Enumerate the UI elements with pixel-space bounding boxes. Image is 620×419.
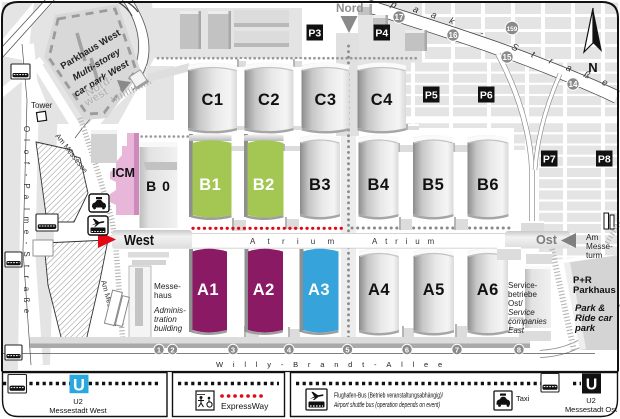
svg-text:A3: A3 — [308, 281, 330, 299]
svg-text:8: 8 — [517, 345, 521, 354]
svg-text:-: - — [22, 242, 31, 245]
svg-text:betriebe: betriebe — [508, 290, 537, 299]
svg-text:15: 15 — [503, 53, 512, 62]
svg-text:r: r — [22, 276, 31, 279]
svg-text:park: park — [574, 323, 596, 334]
svg-text:C3: C3 — [314, 91, 336, 109]
svg-text:U: U — [586, 377, 598, 394]
svg-text:14: 14 — [569, 80, 578, 89]
svg-text:B3: B3 — [309, 176, 331, 194]
svg-text:17: 17 — [395, 13, 404, 22]
svg-text:B2: B2 — [253, 176, 275, 194]
svg-text:3: 3 — [231, 345, 235, 354]
svg-text:haus: haus — [154, 291, 172, 300]
svg-text:Flughafen-Bus (Betrieb veranst: Flughafen-Bus (Betrieb veranstaltungsabh… — [334, 393, 443, 400]
svg-text:e: e — [22, 230, 31, 235]
svg-text:A5: A5 — [423, 281, 445, 299]
svg-text:Atrium: Atrium — [372, 237, 442, 246]
svg-text:5: 5 — [345, 345, 349, 354]
svg-text:7: 7 — [455, 345, 459, 354]
svg-text:B6: B6 — [477, 176, 499, 194]
svg-text:l: l — [22, 208, 31, 210]
svg-text:A1: A1 — [197, 281, 219, 299]
svg-text:West: West — [124, 233, 154, 249]
svg-text:-: - — [22, 174, 31, 177]
svg-text:e: e — [22, 309, 31, 314]
svg-text:159: 159 — [507, 26, 518, 33]
svg-text:P: P — [22, 183, 31, 188]
svg-text:Service-: Service- — [508, 281, 538, 290]
svg-text:building: building — [154, 324, 183, 333]
svg-text:l: l — [22, 139, 31, 141]
svg-text:P8: P8 — [598, 153, 611, 165]
svg-text:P4: P4 — [375, 27, 388, 39]
svg-text:C4: C4 — [371, 91, 393, 109]
svg-text:tration: tration — [154, 315, 177, 324]
svg-text:P6: P6 — [480, 89, 493, 101]
svg-text:B 0: B 0 — [146, 178, 171, 194]
svg-text:o: o — [22, 150, 31, 155]
svg-text:Am: Am — [586, 233, 598, 242]
svg-text:O: O — [22, 126, 31, 132]
svg-text:C2: C2 — [258, 91, 280, 109]
svg-text:a: a — [22, 287, 31, 292]
svg-text:ICM: ICM — [112, 166, 135, 180]
svg-text:N: N — [588, 60, 597, 75]
svg-text:East: East — [508, 326, 525, 335]
svg-text:1: 1 — [157, 345, 161, 354]
svg-text:A4: A4 — [368, 281, 390, 299]
svg-text:Adminis-: Adminis- — [153, 306, 186, 315]
svg-text:A6: A6 — [477, 281, 499, 299]
svg-text:B5: B5 — [422, 176, 444, 194]
svg-text:B4: B4 — [367, 176, 389, 194]
svg-text:Ost: Ost — [536, 232, 558, 247]
svg-text:ExpressWay: ExpressWay — [221, 401, 269, 411]
svg-text:U2: U2 — [73, 397, 83, 406]
svg-text:P5: P5 — [425, 89, 438, 101]
svg-text:Tower: Tower — [31, 101, 53, 110]
svg-text:B1: B1 — [199, 176, 221, 194]
svg-text:Airport shuttle bus (operation: Airport shuttle bus (operation depends o… — [333, 402, 440, 409]
svg-text:P7: P7 — [543, 153, 556, 165]
svg-text:U: U — [73, 377, 85, 395]
svg-text:ß: ß — [22, 298, 31, 303]
svg-text:16: 16 — [449, 31, 458, 40]
svg-text:Taxi: Taxi — [516, 394, 530, 403]
svg-text:6: 6 — [405, 345, 409, 354]
svg-text:Messestadt West: Messestadt West — [49, 406, 107, 415]
svg-text:Messestadt Ost: Messestadt Ost — [565, 405, 618, 414]
svg-text:Atrium: Atrium — [250, 237, 346, 246]
svg-text:U2: U2 — [586, 396, 596, 405]
svg-text:Nord: Nord — [336, 3, 364, 15]
svg-text:S: S — [22, 251, 31, 256]
svg-text:C1: C1 — [201, 91, 223, 109]
svg-text:2: 2 — [170, 345, 174, 354]
svg-text:Willy-Brandt-Allee: Willy-Brandt-Allee — [216, 360, 452, 369]
svg-text:Service: Service — [508, 308, 535, 317]
svg-text:A2: A2 — [253, 281, 275, 299]
svg-text:Ost/: Ost/ — [508, 299, 523, 308]
svg-text:companies: companies — [508, 317, 547, 326]
svg-text:a: a — [22, 195, 31, 200]
svg-text:m: m — [22, 217, 31, 224]
svg-text:P3: P3 — [308, 27, 321, 39]
svg-text:Parkhaus: Parkhaus — [573, 285, 616, 296]
svg-text:Messe-: Messe- — [154, 282, 181, 291]
